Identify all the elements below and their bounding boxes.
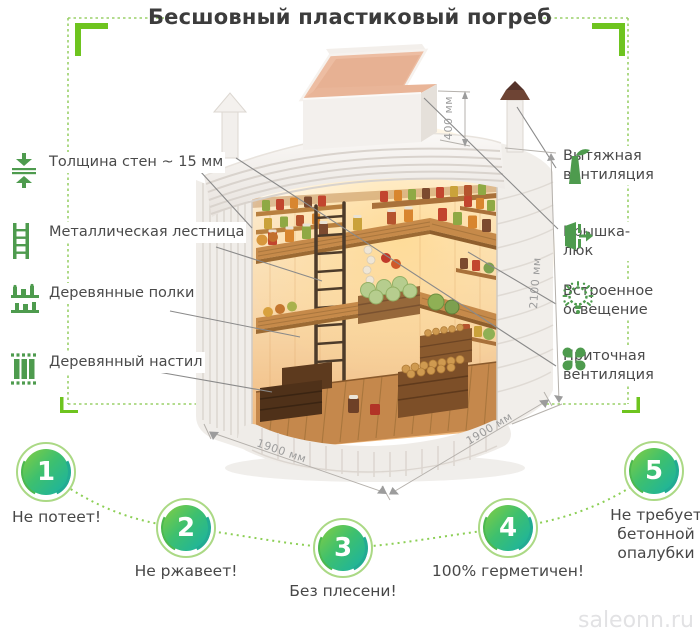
benefit-number: 3 (320, 525, 366, 571)
benefit-badge-1: 1 (16, 442, 76, 502)
benefit-label-5: Не требует бетонной опалубки (607, 506, 700, 563)
feature-supply-vent: Приточная вентиляция (561, 346, 693, 385)
feature-label: Деревянный настил (47, 352, 205, 373)
benefit-badge-4: 4 (478, 498, 538, 558)
benefit-label-3: Без плесени! (283, 582, 403, 601)
feature-label: Металлическая лестница (47, 222, 246, 243)
feature-planks: Деревянный настил (10, 352, 205, 373)
benefit-number: 2 (163, 505, 209, 551)
page-title: Бесшовный пластиковый погреб (0, 5, 700, 29)
exhaust-pipe (500, 81, 530, 152)
watermark: saleonn.ru (578, 608, 698, 633)
benefit-badge-2: 2 (156, 498, 216, 558)
feature-hatch: Крышка-люк (561, 222, 693, 261)
benefit-badge-5: 5 (624, 441, 684, 501)
right-wall (497, 143, 553, 430)
benefit-label-2: Не ржавеет! (126, 562, 246, 581)
benefit-badge-3: 3 (313, 518, 373, 578)
benefit-label-1: Не потеет! (12, 508, 101, 527)
feature-ladder: Металлическая лестница (10, 222, 246, 243)
feature-light: Встроенное освещение (561, 281, 693, 320)
hatch (301, 44, 437, 150)
left-wall (196, 180, 252, 452)
feature-exhaust-vent: Вытяжная вентиляция (561, 146, 693, 185)
feature-label: Толщина стен ~ 15 мм (47, 152, 225, 173)
benefit-number: 4 (485, 505, 531, 551)
supply-pipe (214, 93, 246, 158)
feature-label: Деревянные полки (47, 283, 196, 304)
benefit-label-4: 100% герметичен! (428, 562, 588, 581)
infographic: 400 мм 2100 мм 1900 мм 1900 мм Бесшовный… (0, 0, 700, 640)
benefit-number: 5 (631, 448, 677, 494)
benefit-number: 1 (23, 449, 69, 495)
feature-shelves: Деревянные полки (10, 283, 196, 304)
feature-wall-thickness: Толщина стен ~ 15 мм (10, 152, 225, 173)
dim-hatch-height: 400 мм (442, 96, 455, 140)
